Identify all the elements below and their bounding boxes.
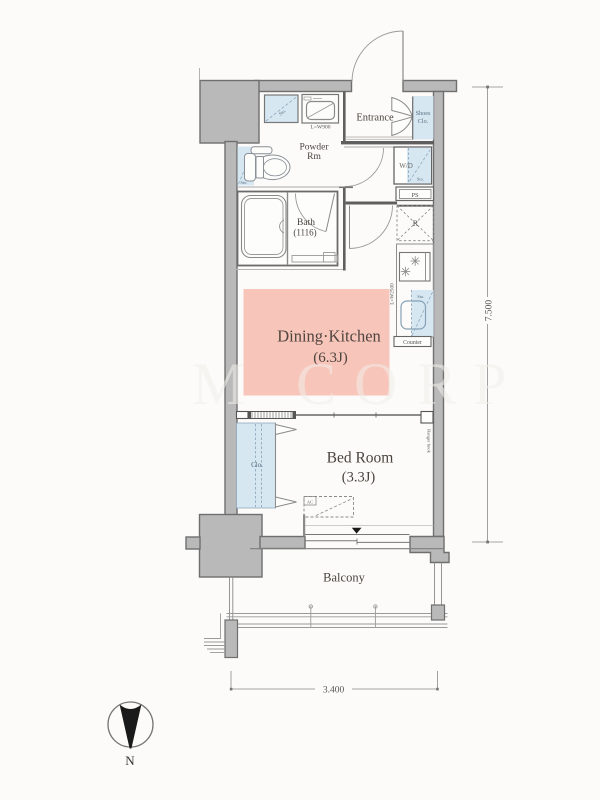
svg-text:AC: AC <box>307 500 313 505</box>
svg-text:Bath: Bath <box>297 218 315 228</box>
svg-text:Dining·Kitchen: Dining·Kitchen <box>277 327 381 346</box>
svg-text:(1116): (1116) <box>293 228 316 238</box>
svg-text:N: N <box>125 753 135 768</box>
svg-text:Bed Room: Bed Room <box>327 450 394 467</box>
svg-text:C: C <box>296 351 336 417</box>
svg-text:Balcony: Balcony <box>323 571 365 585</box>
svg-text:Shoes: Shoes <box>416 110 431 117</box>
svg-text:3.400: 3.400 <box>323 685 345 695</box>
svg-text:R: R <box>413 218 419 228</box>
svg-text:Entrance: Entrance <box>356 113 394 124</box>
svg-text:Sto.: Sto. <box>417 294 424 299</box>
svg-text:M: M <box>192 351 245 417</box>
svg-text:(3.3J): (3.3J) <box>342 470 376 486</box>
svg-text:Rm: Rm <box>307 152 321 162</box>
svg-text:Hanger hook: Hanger hook <box>427 429 432 454</box>
svg-text:L=W2500: L=W2500 <box>389 283 395 305</box>
svg-text:Clo.: Clo. <box>251 461 263 469</box>
svg-text:7.500: 7.500 <box>485 300 495 322</box>
svg-text:R: R <box>417 351 457 417</box>
svg-text:Counter: Counter <box>403 340 422 346</box>
svg-text:PS: PS <box>411 192 419 199</box>
svg-text:Sto.: Sto. <box>417 177 424 182</box>
svg-text:P: P <box>473 351 506 417</box>
svg-text:L=W900: L=W900 <box>311 125 331 131</box>
svg-text:O: O <box>354 351 397 417</box>
svg-text:W/D: W/D <box>399 162 413 170</box>
svg-text:Clo.: Clo. <box>418 118 429 125</box>
